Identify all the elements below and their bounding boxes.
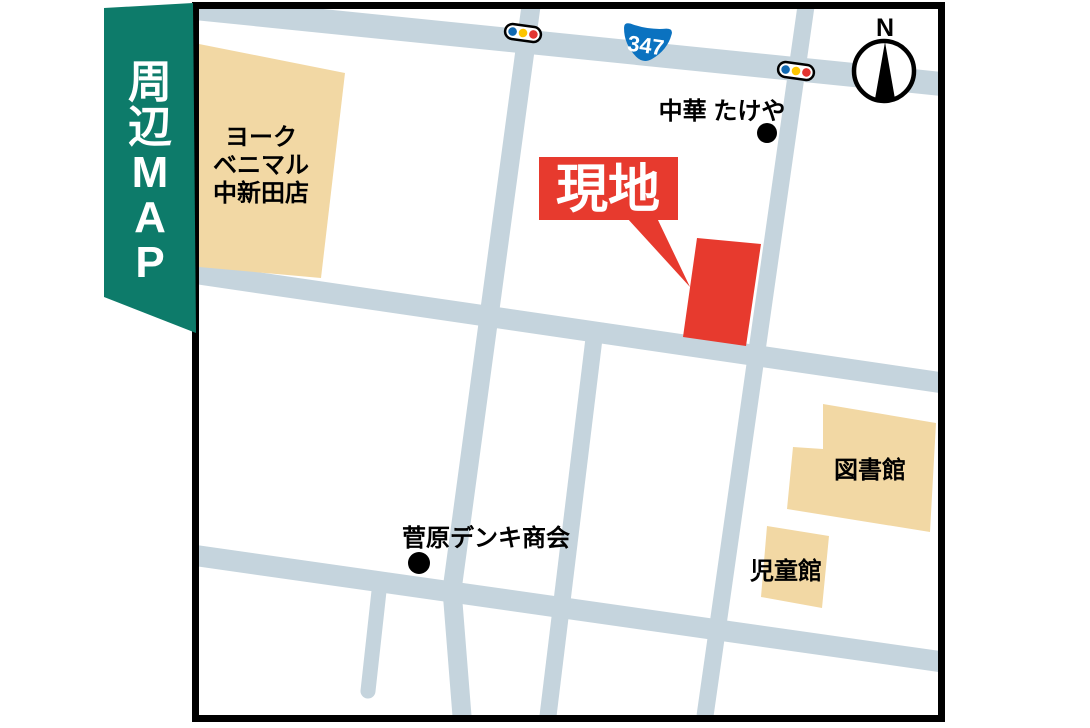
route-badge-number: 347 — [626, 31, 666, 61]
supermarket-label: ヨーク ベニマル 中新田店 — [213, 124, 309, 207]
site-callout-label: 現地 — [556, 161, 660, 219]
library-label: 図書館 — [834, 456, 906, 484]
ribbon-char-4: A — [134, 193, 166, 242]
title-ribbon: 周 辺 M A P — [104, 3, 196, 333]
ribbon-char-2: 辺 — [128, 103, 172, 152]
supermarket-label-line1: ヨーク — [225, 124, 297, 151]
ribbon-char-5: P — [135, 238, 164, 287]
supermarket-label-line3: 中新田店 — [213, 179, 309, 207]
area-map: 現地 中華 たけや 菅原デンキ商会 ヨーク ベニマル 中新田店 図書館 児童館 … — [0, 0, 1090, 728]
restaurant-label: 中華 たけや — [659, 98, 786, 125]
electronics-store-label: 菅原デンキ商会 — [402, 524, 570, 552]
restaurant-dot — [757, 123, 777, 143]
ribbon-char-3: M — [132, 148, 169, 197]
ribbon-char-1: 周 — [128, 58, 172, 107]
childrens-hall-label: 児童館 — [750, 557, 822, 585]
supermarket-label-line2: ベニマル — [213, 152, 309, 179]
electronics-store-dot — [408, 552, 430, 574]
compass-north-label: N — [876, 14, 894, 42]
